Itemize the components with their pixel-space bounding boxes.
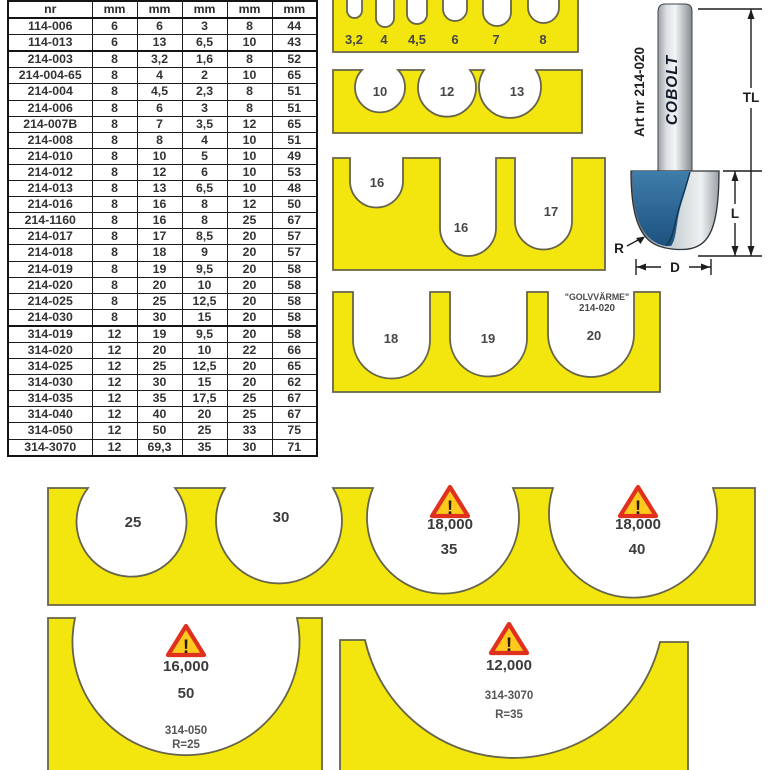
notch-label-25: 25 [125,514,142,531]
notch-label-13: 13 [510,84,524,99]
profile-gauges-illustration: 3,2 4 4,5 6 7 8 10 12 13 16 16 17 18 19 … [0,0,770,770]
warning-exclamation: ! [183,637,189,658]
warning-exclamation: ! [635,498,641,519]
slot-label-6: 6 [451,32,458,47]
dim-label-d: D [670,260,680,275]
notch-label-10: 10 [373,84,387,99]
radius-note-r35: R=35 [495,709,523,721]
rpm-limit-50: 16,000 [163,658,209,675]
art-number-314-050: 314-050 [165,725,207,737]
notch-label-16a: 16 [370,175,384,190]
slot-label-8: 8 [539,32,546,47]
slot-label-3-2: 3,2 [345,32,363,47]
dim-label-tl: TL [743,90,760,105]
warning-exclamation: ! [447,498,453,519]
slot-label-7: 7 [492,32,499,47]
slot-label-4: 4 [380,32,388,47]
notch-label-18: 18 [384,331,398,346]
bit-brand-label: COBOLT [664,54,681,125]
notch-label-16b: 16 [454,220,468,235]
art-number-314-3070: 314-3070 [485,690,534,702]
router-bit-illustration: Art nr 214-020 COBOLT TL L D R [614,4,762,275]
notch-label-35: 35 [441,541,458,558]
dim-label-l: L [731,206,739,221]
notch-label-40: 40 [629,541,646,558]
catalog-page: nrmmmmmmmmmm 114-006663844114-0136136,51… [0,0,770,770]
golvvarme-art-number: 214-020 [579,303,616,314]
golvvarme-note: "GOLVVÄRME" [565,292,629,302]
dim-label-r: R [614,241,624,256]
notch-label-19: 19 [481,331,495,346]
slot-label-4-5: 4,5 [408,32,426,47]
bit-art-number-label: Art nr 214-020 [632,47,647,137]
rpm-limit-3070: 12,000 [486,657,532,674]
warning-exclamation: ! [506,635,512,656]
notch-label-12: 12 [440,84,454,99]
notch-label-20: 20 [587,328,601,343]
notch-label-50: 50 [178,685,195,702]
notch-label-30: 30 [273,509,290,526]
gauge-block-10-13 [333,70,582,133]
notch-label-17: 17 [544,204,558,219]
radius-note-r25: R=25 [172,739,200,751]
